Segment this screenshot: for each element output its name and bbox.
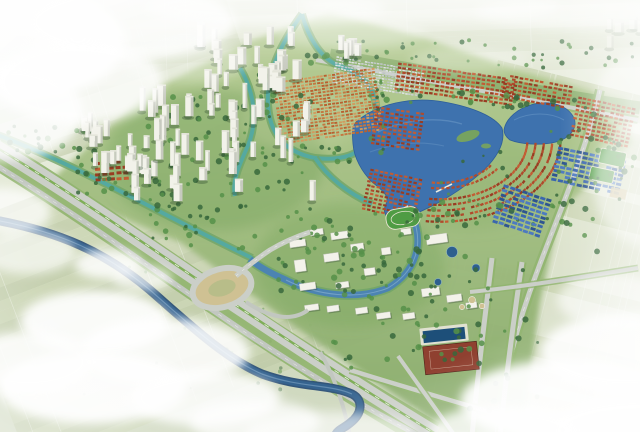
aerial-scene	[0, 0, 640, 432]
haze-vignette	[0, 0, 640, 432]
masterplan-render	[0, 0, 640, 432]
